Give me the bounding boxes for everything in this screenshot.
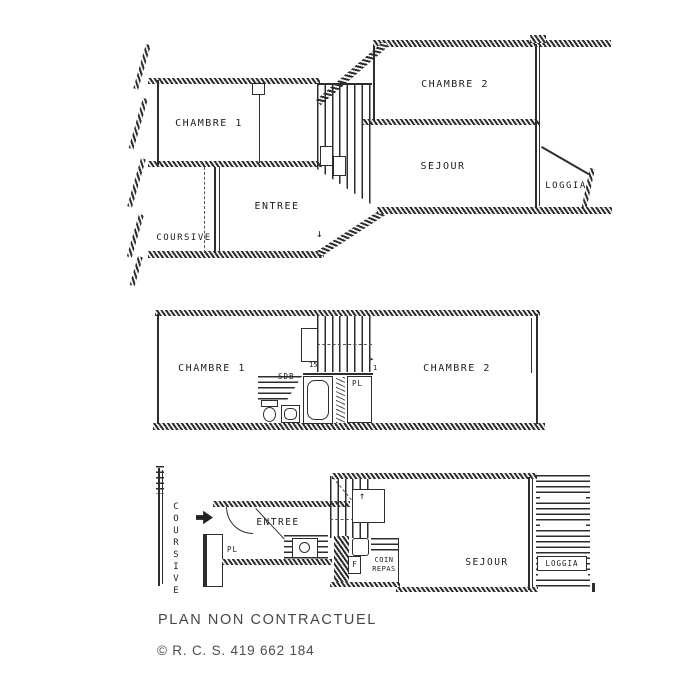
- stair-run-number: 1: [373, 365, 377, 372]
- loggia-gap: [540, 522, 586, 528]
- facade-edge: [129, 98, 148, 149]
- sink-basin: [284, 408, 297, 420]
- wall-segment: [377, 207, 612, 214]
- stair-winder: [320, 146, 333, 166]
- wall-segment: [148, 161, 324, 167]
- coursive-rail-cap: [156, 466, 164, 494]
- loggia-gap: [540, 494, 586, 499]
- room-label-entree: ENTREE: [228, 202, 326, 212]
- wall-segment: [332, 473, 537, 479]
- stair-landing: [352, 489, 385, 523]
- wall-segment: [148, 251, 324, 258]
- room-label-pl: PL: [227, 546, 238, 554]
- room-label-sejour: SEJOUR: [445, 558, 529, 568]
- stair-step-count: 15: [309, 362, 317, 369]
- facade-edge: [127, 158, 146, 207]
- room-label-chambre2: CHAMBRE 2: [398, 364, 516, 374]
- toilet-bowl: [263, 407, 276, 422]
- bathtub-basin: [307, 380, 329, 420]
- wall-segment: [330, 582, 400, 587]
- stair-winder: [333, 156, 346, 176]
- room-label-loggia: LOGGIA: [537, 560, 587, 568]
- room-label-sejour: SEJOUR: [394, 162, 492, 172]
- wall-segment: [334, 536, 349, 585]
- wall-line: [373, 46, 375, 120]
- room-label-loggia: LOGGIA: [527, 182, 605, 191]
- window-line: [531, 318, 532, 373]
- room-label-entree: ENTREE: [238, 518, 318, 528]
- window-line: [528, 477, 530, 590]
- sink-basin: [299, 542, 310, 553]
- room-label-sdb: SDB: [278, 373, 295, 381]
- room-label-chambre1: CHAMBRE 1: [153, 119, 265, 129]
- disclaimer-text: PLAN NON CONTRACTUEL: [158, 612, 377, 628]
- room-label-pl: PL: [352, 380, 363, 388]
- entrance-arrow-icon: [196, 509, 213, 526]
- loggia-louvres: [536, 475, 590, 588]
- stair-treads: [317, 85, 372, 205]
- wall-segment: [362, 119, 539, 125]
- wall-segment: [153, 423, 545, 430]
- facade-edge: [130, 256, 143, 286]
- fridge-label: F: [348, 561, 361, 569]
- wall-line: [303, 373, 373, 375]
- room-label-coursive: COURSIVE: [171, 502, 180, 598]
- loggia-diagonal-line: [541, 146, 590, 176]
- stair-dash-line: [317, 344, 372, 345]
- wall-segment: [530, 35, 546, 43]
- stair-edge: [317, 83, 372, 85]
- window-line: [532, 479, 533, 587]
- stair-landing: [301, 328, 318, 362]
- room-label-coin-repas: COIN REPAS: [366, 556, 402, 573]
- wall-line: [536, 314, 538, 424]
- closet-box: [203, 534, 223, 587]
- facade-edge: [127, 214, 144, 258]
- wall-line: [592, 583, 595, 592]
- stair-up-arrow-icon: ↑: [359, 492, 365, 502]
- closet-box: [252, 83, 265, 95]
- room-label-chambre2: CHAMBRE 2: [396, 80, 514, 90]
- door-hatch: [336, 377, 345, 423]
- stair-arrow-icon: ▸: [370, 356, 374, 363]
- room-label-chambre1: CHAMBRE 1: [156, 364, 268, 374]
- loggia-gap: [538, 574, 588, 579]
- room-label-coursive: COURSIVE: [143, 234, 225, 243]
- wall-segment: [148, 78, 320, 84]
- counter-hatch: [371, 538, 398, 552]
- wall-line: [398, 538, 399, 585]
- copyright-text: © R. C. S. 419 662 184: [157, 643, 314, 658]
- toilet-tank: [261, 400, 278, 407]
- wall-segment: [373, 40, 611, 47]
- stove: [352, 538, 369, 556]
- wall-segment: [396, 587, 538, 592]
- floor-plan-sheet: ↓ CHAMBRE 1 CHAMBRE 2 SEJOUR LOGGIA ENTR…: [0, 0, 700, 700]
- stair-down-arrow-icon: ↓: [316, 228, 323, 239]
